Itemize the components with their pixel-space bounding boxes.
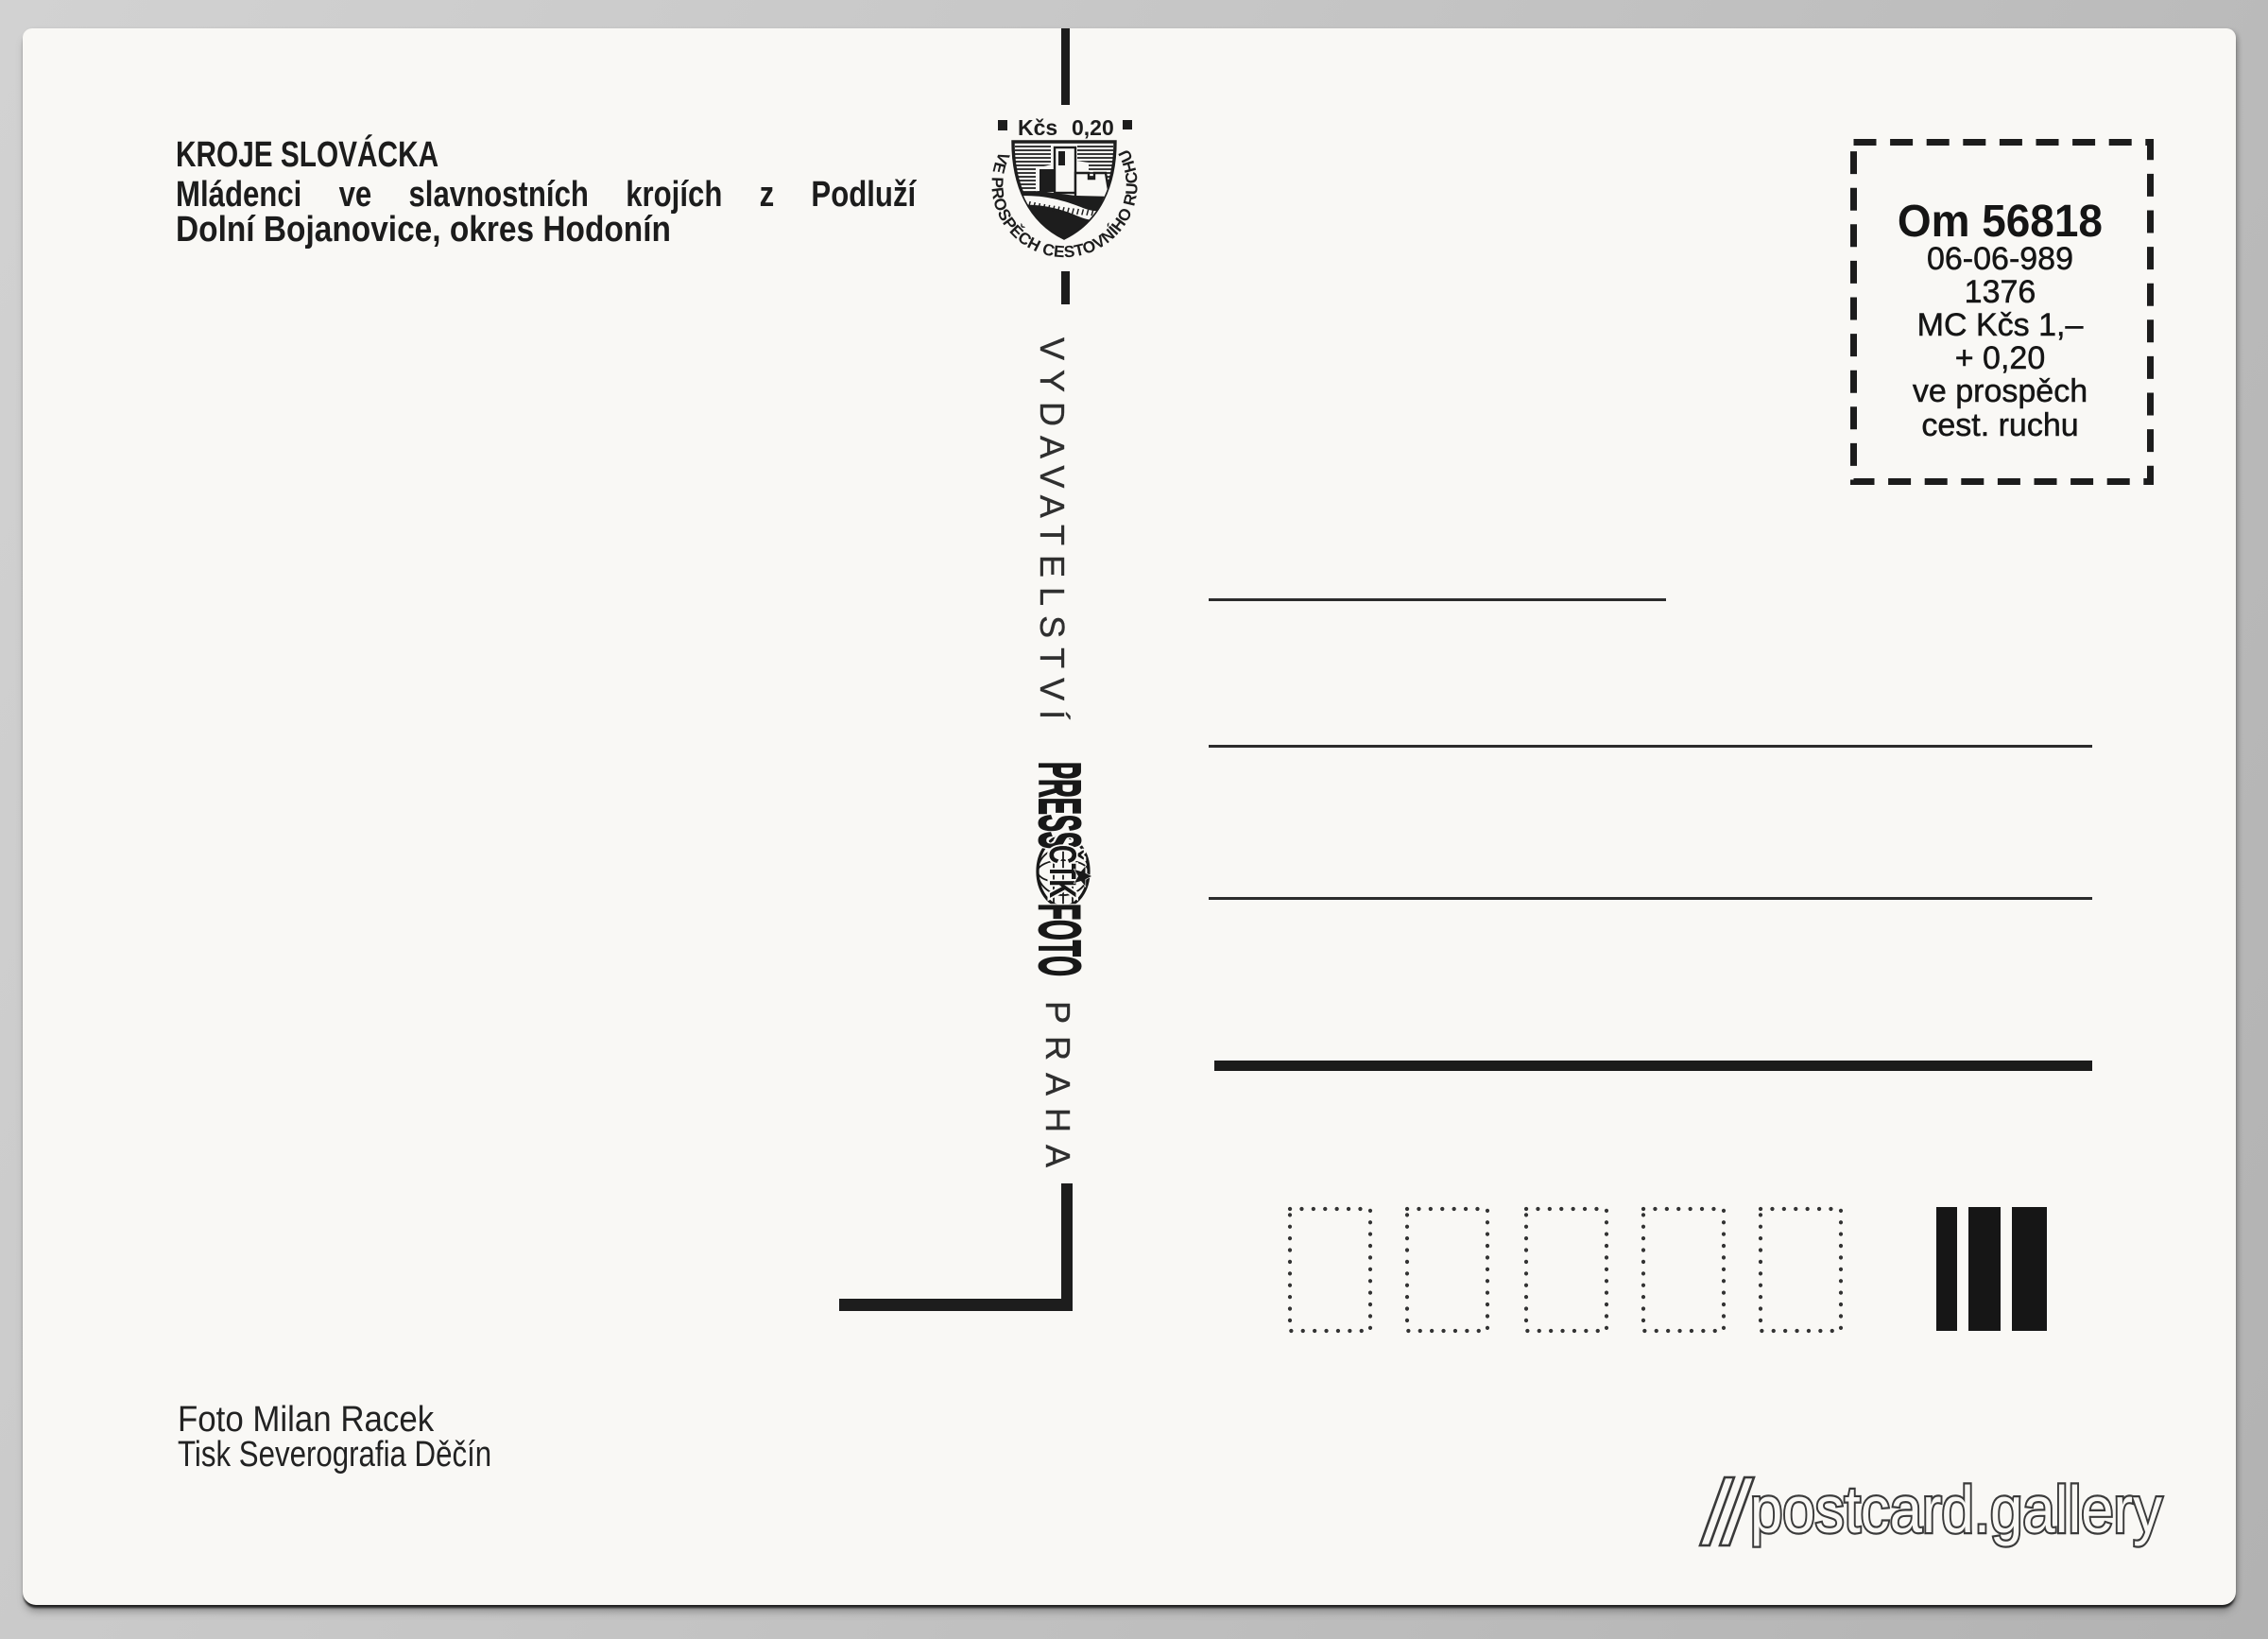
svg-text:Kčs: Kčs [1018,115,1057,140]
svg-text:postcard.gallery: postcard.gallery [1750,1473,2162,1546]
svg-text:PRESS: PRESS [1032,762,1091,849]
svg-text:0,20: 0,20 [1072,115,1114,140]
svg-text:FOTO: FOTO [1032,904,1091,976]
